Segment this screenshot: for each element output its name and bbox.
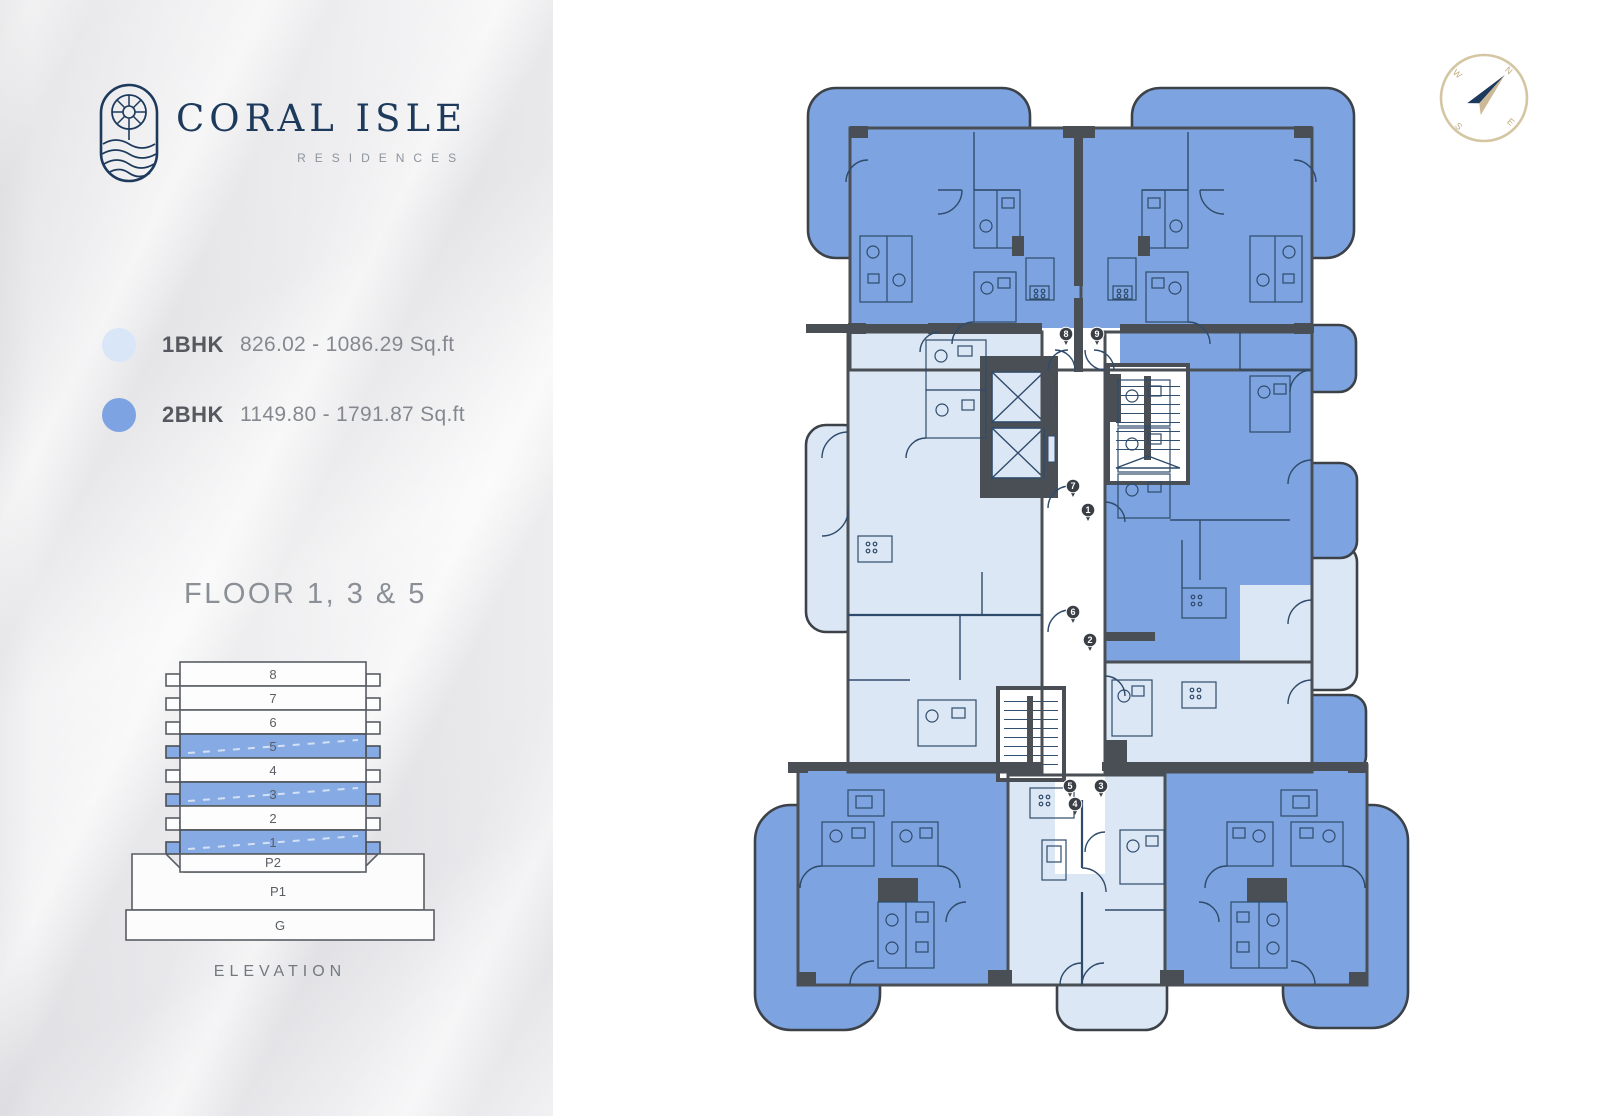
unit-3-area	[1165, 765, 1367, 985]
coral-isle-emblem-icon	[98, 82, 160, 184]
unit-type-legend: 1BHK826.02 - 1086.29 Sq.ft2BHK1149.80 - …	[102, 328, 465, 432]
floorplan-svg: 897162534	[730, 40, 1410, 1040]
elevation-floor-4: 4	[166, 758, 380, 782]
unit-2-area-right	[1240, 585, 1312, 662]
legend-unit-type: 2BHK	[162, 402, 240, 428]
svg-text:8: 8	[269, 667, 276, 682]
elevation-floor-7: 7	[166, 686, 380, 710]
unit-2-area	[1105, 662, 1312, 772]
elevation-podium-label: P2	[265, 855, 281, 870]
brochure-sidebar: CORAL ISLE RESIDENCES 1BHK826.02 - 1086.…	[0, 0, 553, 1116]
legend-row-1bhk: 1BHK826.02 - 1086.29 Sq.ft	[102, 328, 465, 362]
elevation-podium: P2P1G	[126, 854, 434, 940]
svg-text:8: 8	[1063, 329, 1068, 339]
legend-unit-type: 1BHK	[162, 332, 240, 358]
svg-text:3: 3	[1098, 781, 1103, 791]
unit-5-area	[798, 765, 1008, 985]
legend-area-range: 1149.80 - 1791.87 Sq.ft	[240, 403, 465, 427]
elevation-floor-3: 3	[166, 782, 380, 806]
svg-text:6: 6	[1070, 607, 1075, 617]
svg-text:3: 3	[269, 787, 276, 802]
legend-swatch	[102, 328, 136, 362]
legend-area-range: 826.02 - 1086.29 Sq.ft	[240, 333, 454, 357]
svg-text:9: 9	[1094, 329, 1099, 339]
elevation-podium-label: G	[275, 918, 285, 933]
elevation-floor-5: 5	[166, 734, 380, 758]
elevation-floor-1: 1	[166, 830, 380, 854]
elevation-diagram: 87654321 P2P1G ELEVATION	[118, 648, 442, 981]
svg-text:7: 7	[1070, 481, 1075, 491]
svg-text:7: 7	[269, 691, 276, 706]
svg-text:4: 4	[269, 763, 276, 778]
floor-title: FLOOR 1, 3 & 5	[184, 578, 427, 611]
legend-row-2bhk: 2BHK1149.80 - 1791.87 Sq.ft	[102, 398, 465, 432]
elevation-caption: ELEVATION	[118, 963, 442, 981]
elevation-svg: 87654321 P2P1G	[118, 648, 442, 944]
svg-text:1: 1	[269, 835, 276, 850]
svg-text:5: 5	[1067, 781, 1072, 791]
svg-text:4: 4	[1072, 799, 1077, 809]
logo-subtitle: RESIDENCES	[176, 151, 467, 165]
svg-text:5: 5	[269, 739, 276, 754]
logo-title: CORAL ISLE	[176, 100, 467, 137]
compass-icon: NESW	[1437, 51, 1531, 145]
svg-text:2: 2	[269, 811, 276, 826]
elevation-podium-label: P1	[270, 884, 286, 899]
elevation-floor-6: 6	[166, 710, 380, 734]
elevation-floor-2: 2	[166, 806, 380, 830]
logo: CORAL ISLE RESIDENCES	[98, 82, 467, 184]
svg-text:1: 1	[1085, 505, 1090, 515]
elevation-floor-8: 8	[166, 662, 380, 686]
svg-text:6: 6	[269, 715, 276, 730]
svg-text:2: 2	[1087, 635, 1092, 645]
legend-swatch	[102, 398, 136, 432]
